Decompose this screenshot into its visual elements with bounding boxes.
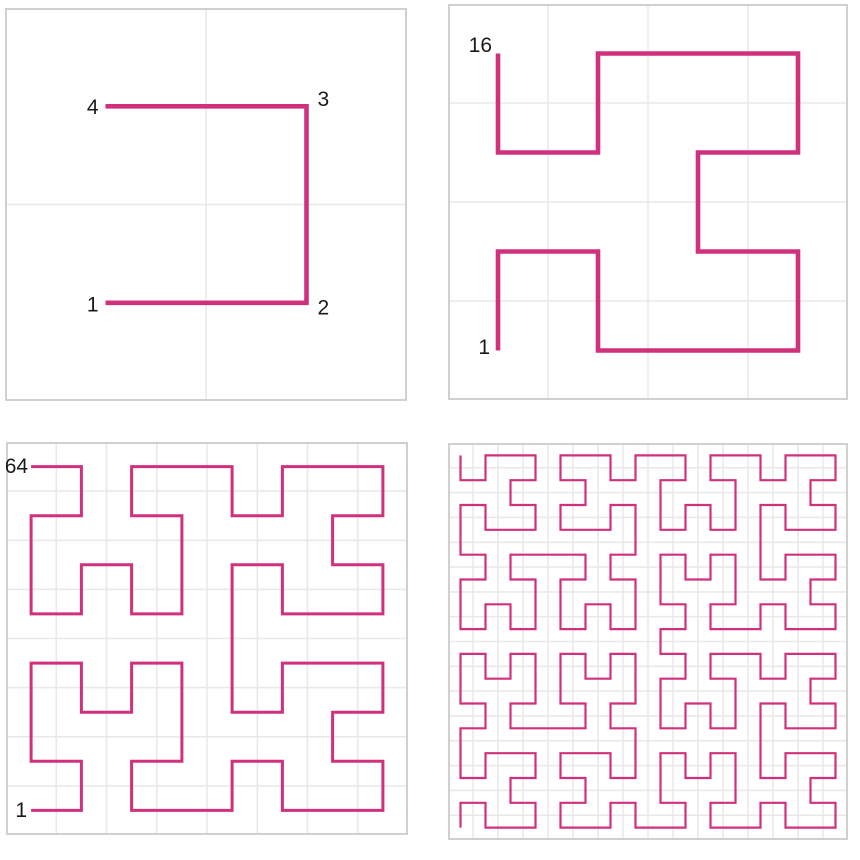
panel-hilbert-order-1: 1234 xyxy=(5,8,407,401)
point-label-4: 4 xyxy=(87,96,99,119)
point-label-1: 1 xyxy=(478,336,490,359)
point-label-1: 1 xyxy=(87,293,99,316)
point-label-3: 3 xyxy=(318,88,330,111)
point-label-1: 1 xyxy=(15,799,27,822)
point-label-2: 2 xyxy=(318,296,330,319)
point-label-64: 64 xyxy=(6,455,28,478)
hilbert-iterations-figure: 1234 116 164 xyxy=(0,0,860,860)
hilbert-order-4-plot xyxy=(448,443,848,840)
panel-hilbert-order-3: 164 xyxy=(6,442,408,835)
panel-hilbert-order-2: 116 xyxy=(448,4,848,400)
panel-hilbert-order-4 xyxy=(448,443,848,840)
hilbert-order-3-plot: 164 xyxy=(6,442,408,835)
point-label-16: 16 xyxy=(469,34,492,57)
hilbert-order-1-plot: 1234 xyxy=(5,8,407,401)
hilbert-order-2-plot: 116 xyxy=(448,4,848,400)
